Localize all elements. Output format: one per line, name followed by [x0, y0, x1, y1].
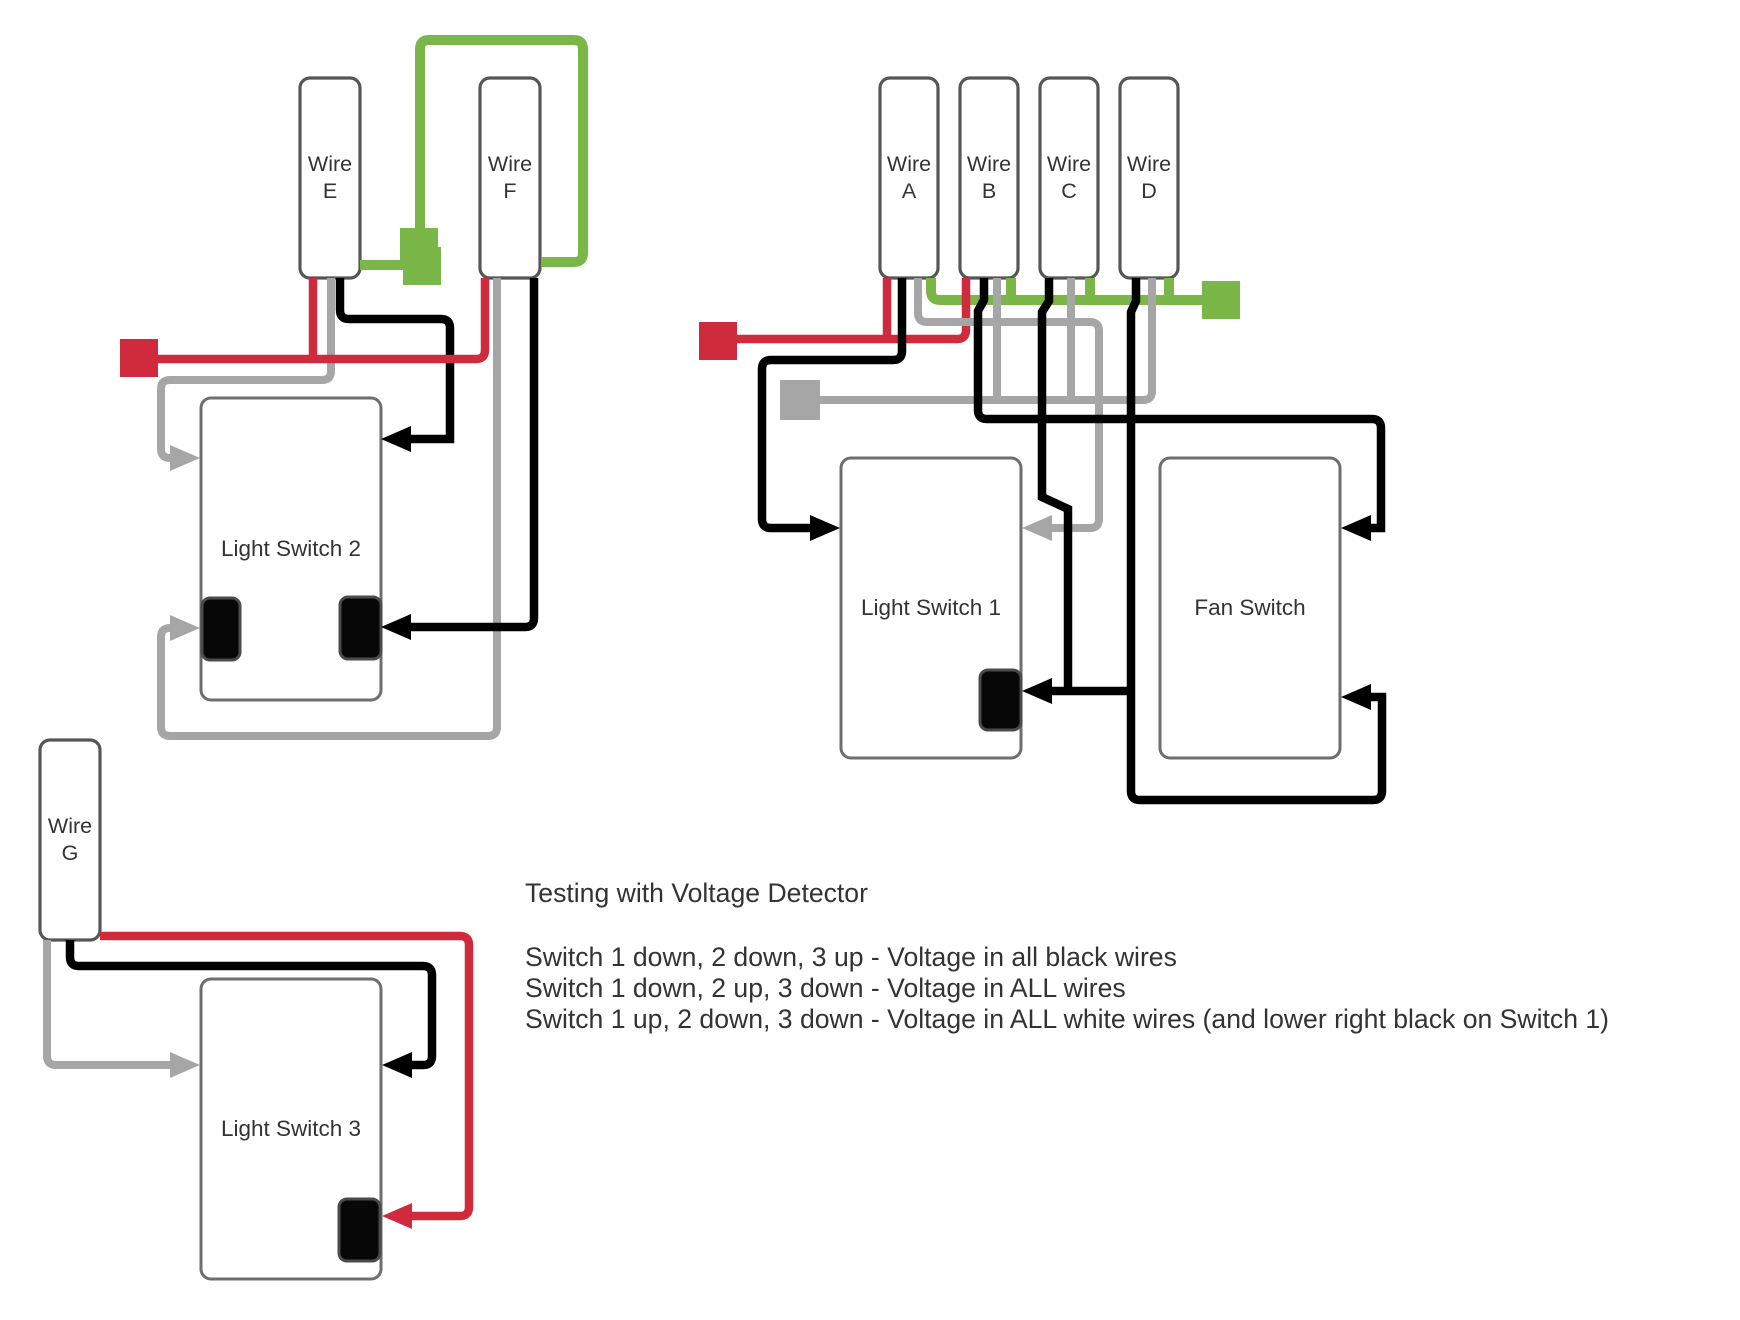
- svg-text:Wire: Wire: [308, 152, 352, 176]
- svg-text:Light Switch 3: Light Switch 3: [221, 1116, 361, 1141]
- svg-text:Fan Switch: Fan Switch: [1194, 595, 1305, 620]
- svg-text:Light Switch 1: Light Switch 1: [861, 595, 1001, 620]
- svg-text:D: D: [1141, 179, 1157, 203]
- svg-text:Wire: Wire: [48, 814, 92, 838]
- svg-text:F: F: [503, 179, 516, 203]
- svg-text:Light Switch 2: Light Switch 2: [221, 536, 361, 561]
- svg-text:A: A: [902, 179, 917, 203]
- svg-text:Wire: Wire: [1127, 152, 1171, 176]
- svg-text:Testing with Voltage Detector: Testing with Voltage Detector: [525, 878, 868, 908]
- svg-text:Switch 1 down, 2 up, 3 down -: Switch 1 down, 2 up, 3 down - Voltage in…: [525, 973, 1126, 1003]
- svg-text:Wire: Wire: [967, 152, 1011, 176]
- svg-text:Switch 1 down, 2 down, 3 up -: Switch 1 down, 2 down, 3 up - Voltage in…: [525, 942, 1177, 972]
- svg-text:G: G: [62, 841, 79, 865]
- svg-text:Switch 1 up, 2 down, 3 down -: Switch 1 up, 2 down, 3 down - Voltage in…: [525, 1004, 1609, 1034]
- svg-text:Wire: Wire: [488, 152, 532, 176]
- svg-text:B: B: [982, 179, 996, 203]
- svg-text:E: E: [323, 179, 337, 203]
- svg-text:Wire: Wire: [1047, 152, 1091, 176]
- svg-text:Wire: Wire: [887, 152, 931, 176]
- svg-text:C: C: [1061, 179, 1077, 203]
